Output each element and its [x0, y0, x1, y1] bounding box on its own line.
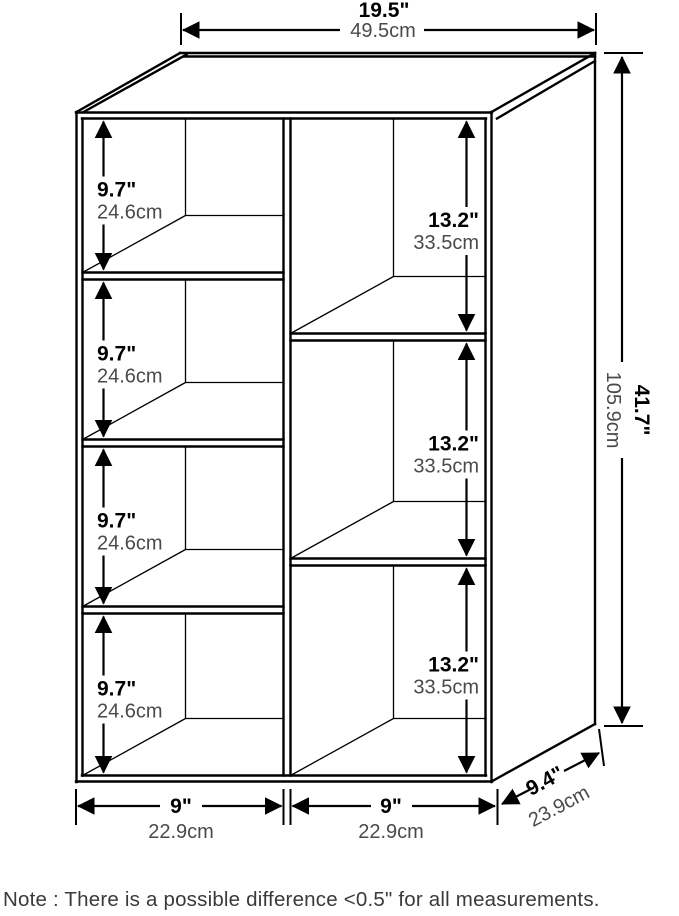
bottom-right-width-cm-label: 22.9cm [358, 821, 424, 843]
depth-dimension: 9.4" 23.9cm [498, 729, 605, 832]
top-width-dimension: 19.5" 49.5cm [181, 0, 596, 45]
bottom-right-width-inches-label: 9" [380, 795, 402, 818]
top-width-cm-label: 49.5cm [350, 20, 416, 42]
bottom-left-width-cm-label: 22.9cm [148, 821, 214, 843]
left-cell-4-inches-label: 9.7" [97, 678, 136, 701]
left-cell-4-cm-label: 24.6cm [97, 701, 163, 723]
right-cell-3-cm-label: 33.5cm [413, 677, 479, 699]
left-cell-2-cm-label: 24.6cm [97, 366, 163, 388]
cabinet-side-face [492, 53, 596, 782]
cabinet-top-face [77, 53, 596, 112]
left-column-shelves [83, 273, 284, 614]
dimension-diagram-page: 19.5" 49.5cm 41.7" 105.9cm 9.4" 23.9cm 9… [0, 0, 679, 916]
left-cell-3-cm-label: 24.6cm [97, 533, 163, 555]
cabinet-drawing [76, 53, 595, 782]
right-cell-dimensions: 13.2" 33.5cm 13.2" 33.5cm 13.2" 33.5cm [413, 122, 479, 773]
right-cell-3-inches-label: 13.2" [428, 654, 479, 677]
bottom-width-dimensions: 9" 22.9cm 9" 22.9cm [76, 789, 495, 843]
left-cell-2-inches-label: 9.7" [97, 343, 136, 366]
top-width-inches-label: 19.5" [359, 0, 410, 22]
right-cell-1-inches-label: 13.2" [428, 209, 479, 232]
height-inches-label: 41.7" [630, 385, 653, 436]
furniture-dimension-diagram: 19.5" 49.5cm 41.7" 105.9cm 9.4" 23.9cm 9… [0, 0, 679, 916]
bottom-left-width-inches-label: 9" [170, 795, 192, 818]
right-cell-2-cm-label: 33.5cm [413, 456, 479, 478]
left-cell-1-cm-label: 24.6cm [97, 202, 163, 224]
height-cm-label: 105.9cm [602, 372, 624, 449]
measurement-note: Note : There is a possible difference <0… [3, 888, 600, 911]
right-cell-2-inches-label: 13.2" [428, 433, 479, 456]
height-dimension: 41.7" 105.9cm [602, 53, 653, 726]
left-cell-1-inches-label: 9.7" [97, 179, 136, 202]
left-cell-3-inches-label: 9.7" [97, 510, 136, 533]
right-cell-1-cm-label: 33.5cm [413, 232, 479, 254]
